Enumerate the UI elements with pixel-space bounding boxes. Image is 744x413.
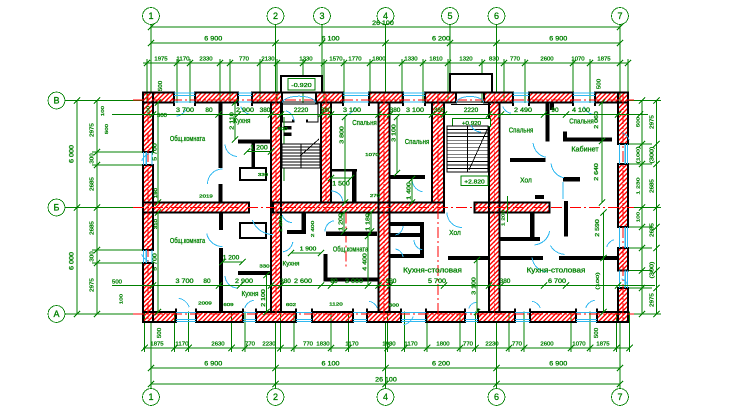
svg-text:80: 80 [330,278,338,285]
svg-text:6 900: 6 900 [204,36,223,43]
svg-text:500: 500 [157,328,163,338]
svg-text:2685: 2685 [650,223,656,237]
svg-text:2975: 2975 [90,278,96,292]
svg-text:Кухня: Кухня [242,289,259,298]
svg-text:770: 770 [463,342,473,348]
svg-text:380: 380 [321,107,332,114]
svg-text:1070: 1070 [572,342,585,348]
svg-text:6: 6 [494,392,499,402]
svg-text:600: 600 [389,303,400,309]
svg-text:770: 770 [303,342,313,348]
svg-text:1 200: 1 200 [223,256,240,262]
svg-text:В: В [53,96,59,106]
svg-text:100: 100 [100,105,106,116]
svg-text:6 100: 6 100 [322,36,341,43]
svg-text:300: 300 [90,251,96,261]
svg-text:2009: 2009 [198,301,212,307]
svg-text:1 400: 1 400 [407,182,413,200]
svg-text:2600: 2600 [540,342,553,348]
svg-text:90: 90 [551,107,559,114]
svg-text:6 100: 6 100 [322,361,341,368]
svg-text:270: 270 [370,193,381,199]
svg-text:5 700: 5 700 [153,143,159,161]
svg-text:310: 310 [153,218,158,229]
svg-text:6 200: 6 200 [432,36,451,43]
svg-text:190: 190 [153,187,158,198]
svg-text:1070: 1070 [571,57,584,63]
svg-text:770: 770 [512,342,522,348]
svg-text:380: 380 [260,107,271,114]
svg-text:2: 2 [273,392,278,402]
svg-text:1070: 1070 [365,152,379,158]
svg-text:4: 4 [383,392,388,402]
svg-text:1330: 1330 [404,57,417,63]
svg-text:2 490: 2 490 [514,107,533,114]
svg-text:1330: 1330 [299,57,312,63]
svg-text:2600: 2600 [540,57,553,63]
svg-text:6 900: 6 900 [204,361,223,368]
svg-text:1 900: 1 900 [300,247,317,253]
svg-text:5: 5 [447,11,452,21]
svg-text:1320: 1320 [459,57,472,63]
svg-text:1875: 1875 [596,342,609,348]
svg-text:1 200: 1 200 [250,146,268,152]
svg-text:6 900: 6 900 [549,36,568,43]
svg-text:500: 500 [157,113,167,119]
svg-text:2130: 2130 [261,57,274,63]
svg-text:Кухня-столовая: Кухня-столовая [403,266,462,275]
svg-text:Спальня: Спальня [405,137,430,146]
svg-text:1 230: 1 230 [636,177,642,194]
svg-text:500: 500 [112,280,122,286]
svg-text:Кухня: Кухня [234,116,251,125]
svg-text:А: А [53,309,59,319]
svg-text:6 200: 6 200 [432,361,451,368]
svg-text:2: 2 [273,11,278,21]
svg-text:380: 380 [280,278,291,285]
svg-text:3 100: 3 100 [406,107,425,114]
svg-text:770: 770 [510,57,520,63]
svg-text:Кухня: Кухня [283,261,300,268]
svg-text:5 700: 5 700 [428,278,447,285]
svg-text:3 100: 3 100 [343,107,362,114]
svg-text:770: 770 [245,342,255,348]
svg-text:Спальня: Спальня [509,126,534,135]
svg-text:80: 80 [203,278,211,285]
svg-text:2330: 2330 [199,57,212,63]
svg-text:602: 602 [286,302,297,308]
svg-text:3 100: 3 100 [392,124,398,142]
svg-text:7: 7 [617,11,622,21]
svg-text:4 100: 4 100 [572,107,591,114]
svg-text:Спальня: Спальня [569,117,594,126]
svg-text:380: 380 [500,278,511,285]
svg-text:3 000: 3 000 [345,278,364,285]
svg-text:2 590: 2 590 [595,219,601,237]
svg-text:100: 100 [146,105,151,116]
svg-text:1: 1 [148,11,153,21]
svg-text:2220: 2220 [464,107,479,114]
svg-text:1: 1 [148,392,153,402]
svg-text:380: 380 [434,107,445,114]
svg-text:5 700: 5 700 [153,253,159,271]
svg-text:1 200: 1 200 [278,215,283,232]
svg-text:(300): (300) [650,146,656,163]
svg-text:2 640: 2 640 [594,163,600,181]
svg-text:3 700: 3 700 [176,107,195,114]
svg-text:Общ.комната: Общ.комната [333,245,369,254]
svg-text:1830: 1830 [316,342,329,348]
svg-text:1770: 1770 [348,57,361,63]
svg-text:100: 100 [636,211,642,222]
svg-text:609: 609 [223,302,234,308]
svg-text:1980: 1980 [382,342,395,348]
svg-text:6 900: 6 900 [549,361,568,368]
svg-text:2630: 2630 [211,342,224,348]
svg-text:1975: 1975 [154,57,167,63]
svg-text:2685: 2685 [90,221,96,235]
svg-text:100: 100 [119,293,124,304]
svg-text:1875: 1875 [597,57,610,63]
svg-text:1 200: 1 200 [501,209,506,226]
svg-text:1170: 1170 [175,342,188,348]
svg-text:Хол: Хол [449,228,461,237]
svg-text:300: 300 [90,153,96,163]
svg-text:-0.920: -0.920 [291,83,311,89]
svg-text:4 400: 4 400 [363,253,369,271]
svg-text:6 700: 6 700 [548,278,567,285]
svg-text:1 180: 1 180 [366,213,372,231]
svg-text:500: 500 [158,81,164,91]
svg-text:330: 330 [258,172,269,178]
svg-text:3 100: 3 100 [472,277,478,295]
svg-text:1 200: 1 200 [339,213,345,231]
svg-text:500: 500 [104,123,110,134]
svg-text:500: 500 [594,328,600,338]
svg-text:Б: Б [54,203,60,213]
svg-text:1120: 1120 [329,302,343,308]
svg-text:(100): (100) [595,272,601,290]
svg-text:2685: 2685 [90,177,96,191]
svg-text:Кухня-столовая: Кухня-столовая [527,266,586,275]
svg-text:2975: 2975 [650,293,656,307]
svg-text:2 900: 2 900 [235,278,254,285]
svg-text:1800: 1800 [372,57,385,63]
svg-text:500: 500 [636,116,642,127]
svg-text:1875: 1875 [150,342,163,348]
svg-text:6 000: 6 000 [69,144,76,163]
svg-text:2 600: 2 600 [294,278,313,285]
svg-text:1170: 1170 [404,342,417,348]
svg-text:(300): (300) [650,261,656,278]
svg-text:Хол: Хол [520,176,532,185]
svg-text:2220: 2220 [294,107,309,114]
svg-text:1800: 1800 [436,342,449,348]
svg-text:2 400: 2 400 [310,220,316,237]
svg-text:330: 330 [259,264,270,270]
svg-text:500: 500 [597,79,603,89]
svg-text:3: 3 [319,11,324,21]
svg-text:Кабинет: Кабинет [571,145,599,154]
svg-text:26 100: 26 100 [375,377,397,384]
svg-text:2230: 2230 [262,342,275,348]
svg-text:2019: 2019 [199,194,213,200]
svg-text:Общ.комната: Общ.комната [170,236,206,245]
svg-text:7: 7 [617,392,622,402]
svg-text:2975: 2975 [650,115,656,129]
svg-text:830: 830 [489,57,499,63]
svg-text:2 900: 2 900 [236,107,255,114]
svg-text:1170: 1170 [176,57,189,63]
svg-text:(100): (100) [636,146,642,164]
svg-text:6 000: 6 000 [69,251,76,270]
svg-text:Спальня: Спальня [352,118,377,127]
svg-text:2 100: 2 100 [261,289,267,307]
svg-text:770: 770 [239,57,249,63]
svg-text:1810: 1810 [429,57,442,63]
svg-text:+2.820: +2.820 [464,179,484,185]
svg-text:600: 600 [277,126,288,132]
svg-text:3 700: 3 700 [176,278,195,285]
svg-text:3 800: 3 800 [340,126,346,144]
svg-text:2685: 2685 [650,179,656,193]
svg-text:Общ.комната: Общ.комната [170,134,206,143]
svg-text:80: 80 [205,107,213,114]
svg-text:1 500: 1 500 [332,182,350,188]
svg-text:2975: 2975 [90,123,96,137]
svg-text:380: 380 [390,107,401,114]
svg-text:6: 6 [494,11,499,21]
svg-text:2 060: 2 060 [594,111,600,129]
svg-text:26 100: 26 100 [372,20,394,27]
svg-text:1170: 1170 [345,342,358,348]
svg-text:1570: 1570 [329,57,342,63]
svg-text:380: 380 [386,278,397,285]
